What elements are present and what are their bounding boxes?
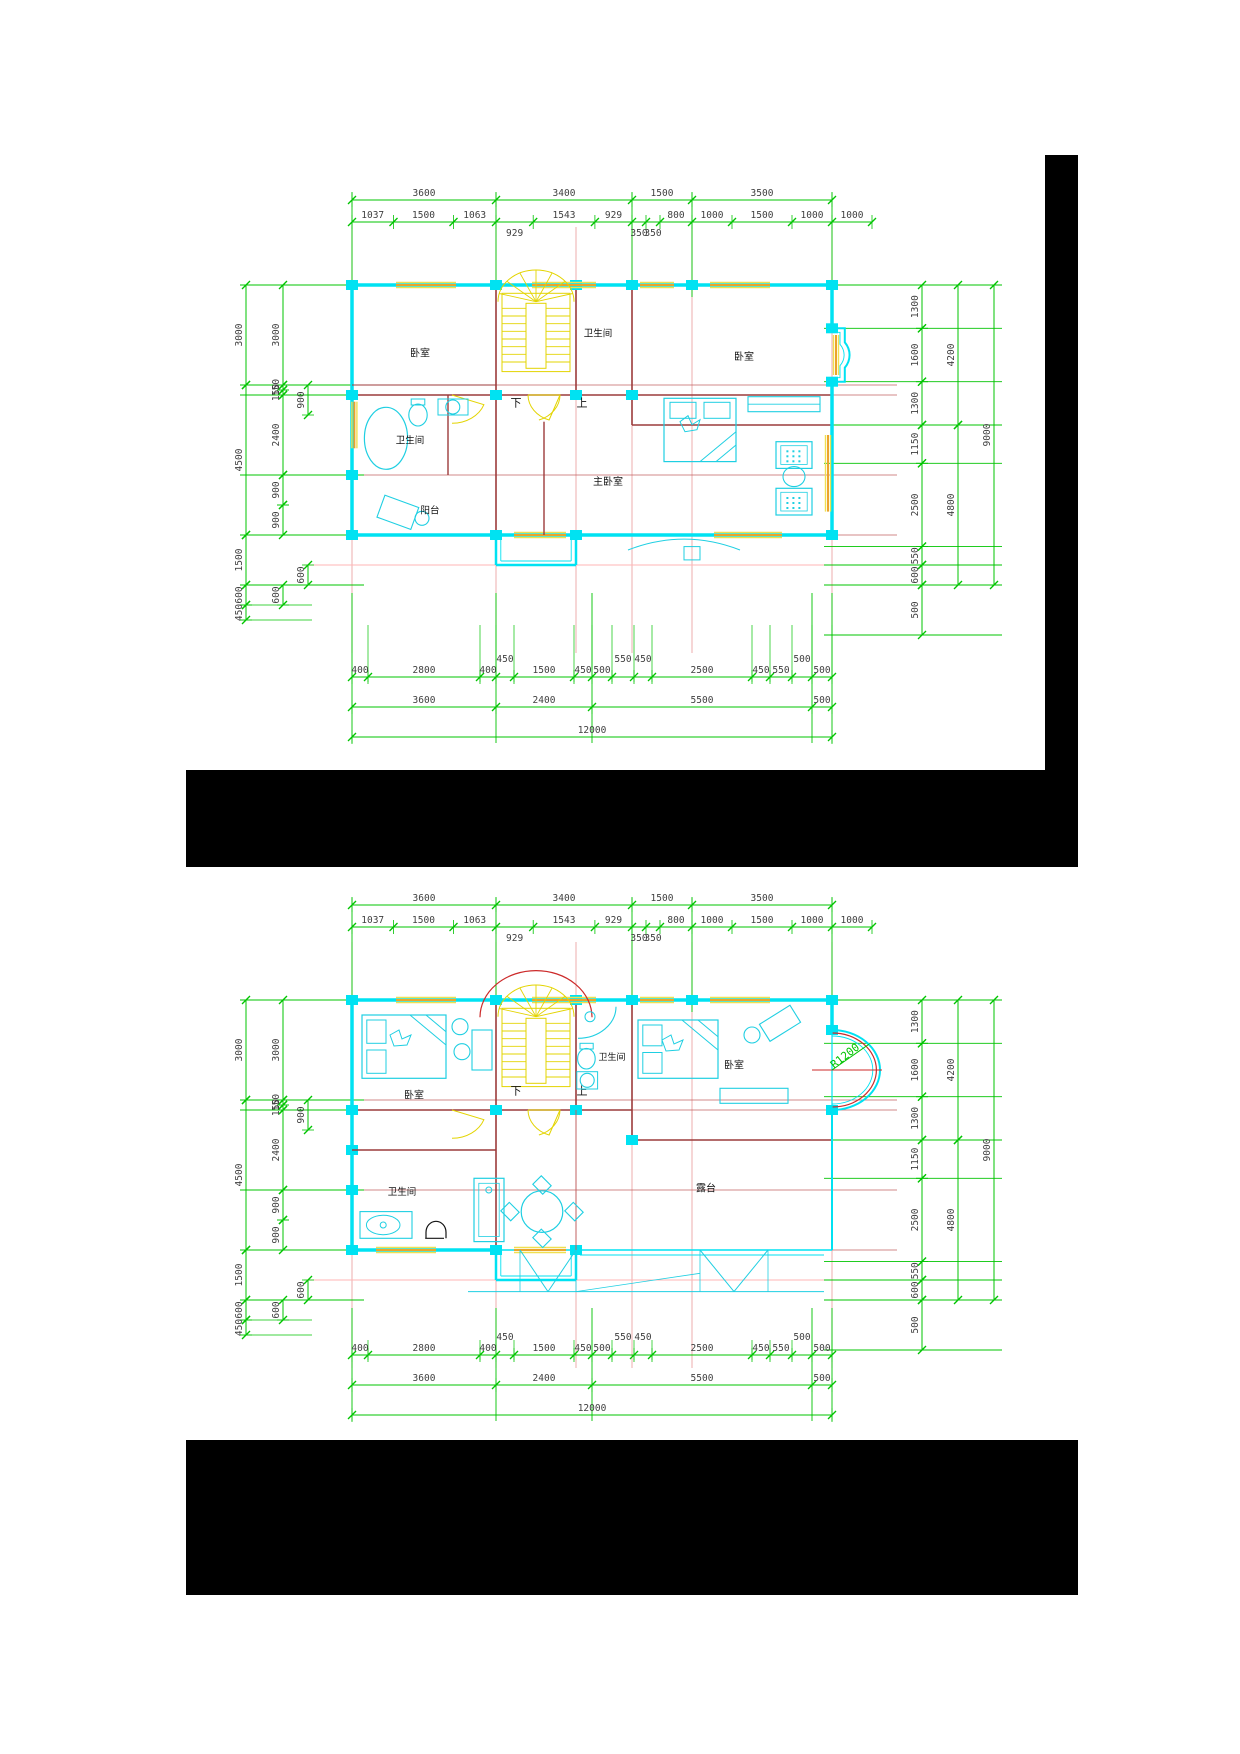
dim-label: 600 [296,566,307,583]
dim-label: 500 [813,1343,830,1354]
dim-label: 2400 [271,1138,282,1161]
dim-label: 400 [351,1343,368,1354]
dot [798,460,800,462]
dim-label: 3400 [553,893,576,904]
dim-label: 600 [234,1301,245,1318]
dim-label: 929 [506,933,523,944]
dim-label: 600 [910,566,921,583]
dim-label: 12000 [578,725,607,736]
dim-label: 2500 [691,665,714,676]
door-arc [528,1110,560,1135]
column [626,995,638,1005]
dot [792,455,794,457]
pillow [643,1053,662,1074]
dim-label: 550 [910,1262,921,1279]
dim-label: 1500 [234,1263,245,1286]
sink-counter [438,399,468,415]
blanket [426,1015,446,1032]
dim-label: 2400 [533,695,556,706]
stair-body [502,293,570,371]
dim-label: 1000 [841,915,864,926]
column [686,995,698,1005]
toilet-front [426,1221,446,1238]
dot [798,497,800,499]
dim-label: 1063 [463,915,486,926]
room-label-bedroom: 卧室 [724,1058,744,1071]
drain [380,1222,386,1228]
dim-label: 500 [813,695,830,706]
dim-label: 4500 [234,448,245,471]
dining-table [521,1191,563,1233]
dim-label: 450 [574,665,591,676]
pillow [704,402,730,418]
toilet [578,1048,596,1069]
dim-label: 1037 [361,915,384,926]
dim-label: 900 [271,481,282,498]
vanity-sink [366,1215,400,1234]
dim-label: 3500 [751,893,774,904]
column [570,530,582,540]
room-label-bathroom: 卫生间 [598,1051,625,1063]
dim-label: 1300 [910,392,921,415]
dim-label: 3600 [413,188,436,199]
dim-label: 500 [593,1343,610,1354]
stair-label-down: 下 [511,396,522,409]
chair [744,1027,760,1043]
dim-label: 550 [772,1343,789,1354]
dim-label: 3600 [413,893,436,904]
column [826,995,838,1005]
room-label-bedroom: 卧室 [404,1088,424,1101]
shower [578,1007,616,1039]
dim-label: 450 [752,665,769,676]
bay-window [832,328,850,381]
column [626,390,638,400]
dot [786,455,788,457]
dim-label: 1500 [234,548,245,571]
dim-label: 1543 [553,210,576,221]
dot [786,450,788,452]
dim-label: 900 [271,1196,282,1213]
column [490,1105,502,1115]
dim-label: 3000 [234,1038,245,1061]
side-table [783,467,805,487]
stair-body [502,1008,570,1086]
dim-label: 550 [614,1332,631,1343]
dim-label: 1300 [910,295,921,318]
blanket [716,445,736,462]
dim-label: 1000 [801,915,824,926]
dim-label: 1500 [533,665,556,676]
dot [792,450,794,452]
roof [734,1250,768,1292]
dim-label: 9000 [982,1138,993,1161]
toilet [409,404,427,426]
stair-label-up: 上 [577,396,588,409]
room-label-balcony: 阳台 [420,504,439,516]
dim-label: 2500 [910,493,921,516]
dot [792,497,794,499]
dim-label: 450 [634,654,651,665]
dim-label: 350 [644,228,661,239]
roof [548,1250,576,1292]
dim-label: 500 [910,1316,921,1333]
dot [786,460,788,462]
dim-label: 3600 [413,695,436,706]
column [346,530,358,540]
dim-label: 3500 [751,188,774,199]
dim-label: 4800 [946,1208,957,1231]
column [826,530,838,540]
dim-label: 500 [813,1373,830,1384]
dim-label: 4200 [946,343,957,366]
dot [798,455,800,457]
drawing-sheet: 3600340015003500103715001063929154392935… [0,0,1240,1754]
dim-label: 400 [479,1343,496,1354]
dim-label: 500 [593,665,610,676]
column [346,1185,358,1195]
dim-label: 450 [574,1343,591,1354]
dim-label: 1543 [553,915,576,926]
dim-label: 1150 [910,432,921,455]
stair-stringer [526,1018,546,1083]
dim-label: 550 [614,654,631,665]
desk [472,1030,492,1070]
dim-label: 900 [296,391,307,408]
dim-label: 800 [667,915,684,926]
dim-label: 1000 [801,210,824,221]
dot [786,497,788,499]
dim-label: 929 [605,915,622,926]
pillow [367,1050,386,1073]
column [346,1105,358,1115]
bed [638,1020,718,1078]
dim-label: 1000 [701,210,724,221]
dim-label: 1600 [910,1058,921,1081]
dim-label: 1300 [910,1010,921,1033]
column [626,280,638,290]
pillow [643,1025,662,1046]
dim-label: 2400 [271,423,282,446]
dim-label: 2500 [691,1343,714,1354]
column [490,390,502,400]
dim-label: 1063 [463,210,486,221]
dim-label: 9000 [982,423,993,446]
column [346,470,358,480]
column [346,280,358,290]
dim-label: 1500 [651,188,674,199]
dim-label: 2500 [910,1208,921,1231]
room-label-bedroom: 卧室 [734,350,754,363]
redaction-bar-vertical [1045,155,1078,867]
dim-label: 929 [605,210,622,221]
room-label-bathroom: 卫生间 [584,328,613,340]
dim-label: 2400 [533,1373,556,1384]
dim-label: 350 [644,933,661,944]
pillow [367,1020,386,1043]
roof [576,1273,700,1291]
dim-label: 1500 [412,210,435,221]
dim-label: 450 [234,604,245,621]
dim-label: 929 [506,228,523,239]
bed [362,1015,446,1078]
column [346,995,358,1005]
dim-label: 5500 [691,695,714,706]
room-label-master-bedroom: 主卧室 [593,475,623,488]
chair-seat [565,1202,583,1220]
dim-label: 1500 [651,893,674,904]
dot [786,507,788,509]
dot [792,502,794,504]
blanket [682,1020,718,1050]
dim-label: 1037 [361,210,384,221]
dim-label: 600 [234,586,245,603]
floor-plan-lower: 3600340015003500103715001063929154392935… [234,893,1002,1422]
dim-label: 2800 [413,665,436,676]
dim-label: 12000 [578,1403,607,1414]
dim-label: 450 [496,1332,513,1343]
dim-label: 1500 [533,1343,556,1354]
floor-plan-upper: 3600340015003500103715001063929154392935… [234,188,1002,744]
corner-desk [759,1005,800,1041]
column [490,280,502,290]
bench [720,1088,788,1103]
dim-label: 1500 [751,915,774,926]
dot [792,460,794,462]
stair-label-down: 下 [511,1085,522,1098]
dim-label: 900 [296,1106,307,1123]
dim-label: 4200 [946,1058,957,1081]
redaction-bar-top [186,770,1078,867]
column [346,390,358,400]
dim-label: 400 [351,665,368,676]
dim-label: 550 [772,665,789,676]
column [686,280,698,290]
blanket [410,1015,446,1045]
room-label-terrace: 露台 [696,1182,716,1195]
dining-chair [565,1202,583,1220]
dim-label: 1500 [751,210,774,221]
dim-label: 900 [271,1226,282,1243]
chair [454,1044,470,1060]
dim-label: 2800 [413,1343,436,1354]
dim-label: 1000 [841,210,864,221]
dim-label: 5500 [691,1373,714,1384]
blanket [700,432,736,462]
dim-label: 500 [793,654,810,665]
door-arc [528,395,560,420]
dim-label: 1000 [701,915,724,926]
dim-label: 450 [634,1332,651,1343]
dot [798,502,800,504]
balcony-desk [377,495,419,529]
dim-label: 400 [479,665,496,676]
dim-label: 3000 [234,323,245,346]
dim-label: 800 [667,210,684,221]
dim-label: 3000 [271,323,282,346]
dim-label: 550 [910,547,921,564]
dim-label: 500 [813,665,830,676]
door-arc [528,395,560,420]
column [826,280,838,290]
column [346,1245,358,1255]
dim-label: 600 [296,1281,307,1298]
dim-label: 1600 [910,343,921,366]
dim-label: 600 [271,586,282,603]
dim-label: 900 [271,511,282,528]
desk [759,1005,800,1041]
dim-label: 450 [496,654,513,665]
roof [700,1250,734,1292]
cad-canvas: 3600340015003500103715001063929154392935… [0,0,1240,1754]
door-arc [528,1110,560,1135]
column [490,1245,502,1255]
dim-label: 500 [793,1332,810,1343]
desk [377,495,419,529]
dim-label: 500 [910,601,921,618]
blanket [698,1020,718,1037]
dim-label: 4800 [946,493,957,516]
redaction-bar-bottom [186,1440,1078,1595]
door-arc [452,1110,484,1138]
room-label-bedroom: 卧室 [410,347,430,360]
dot [786,502,788,504]
roof [520,1250,548,1292]
stair-stringer [526,303,546,368]
radius-label: R1200 [828,1041,862,1072]
dot [792,507,794,509]
dim-label: 4500 [234,1163,245,1186]
blanket-fold [390,1030,411,1046]
dim-label: 450 [234,1319,245,1336]
bed [664,398,736,461]
dot [798,507,800,509]
column [490,995,502,1005]
dim-label: 1500 [412,915,435,926]
dim-label: 600 [910,1281,921,1298]
dim-label: 600 [271,1301,282,1318]
dim-label: 1300 [910,1107,921,1130]
dim-label: 450 [752,1343,769,1354]
shower-head [585,1012,595,1022]
dim-label: 1150 [910,1147,921,1170]
dim-label: 3600 [413,1373,436,1384]
dot [798,450,800,452]
dim-label: 3400 [553,188,576,199]
chair [452,1019,468,1035]
room-label-bathroom: 卫生间 [388,1186,417,1198]
blanket-fold [662,1035,683,1051]
column [490,530,502,540]
room-label-bathroom: 卫生间 [396,434,425,446]
dim-label: 3000 [271,1038,282,1061]
column [626,1135,638,1145]
